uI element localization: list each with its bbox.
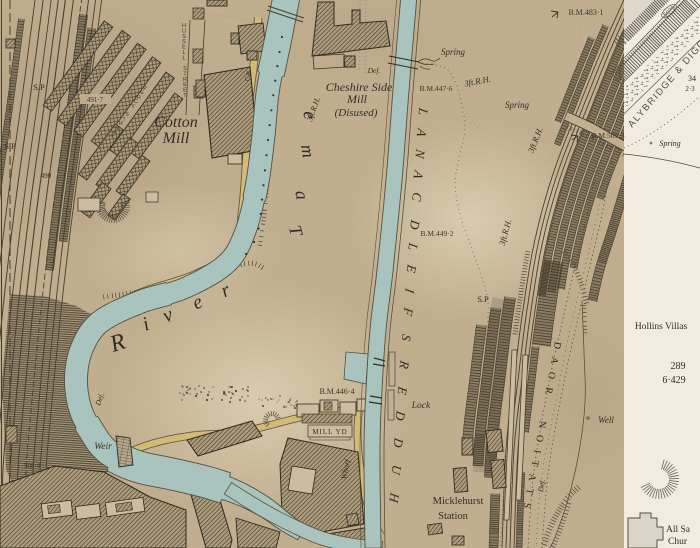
svg-text:Y: Y (131, 104, 135, 110)
svg-text:S.P: S.P (33, 82, 45, 92)
svg-text:S.P: S.P (4, 141, 16, 151)
svg-text:491·7: 491·7 (87, 96, 104, 104)
svg-text:(Disused): (Disused) (335, 107, 378, 119)
svg-text:MILL YD: MILL YD (312, 428, 347, 436)
svg-text:490: 490 (41, 172, 52, 180)
svg-text:B.M.509·3: B.M.509·3 (592, 131, 625, 140)
svg-text:Micklehurst: Micklehurst (433, 496, 484, 507)
svg-text:289: 289 (671, 361, 686, 372)
svg-text:Def.: Def. (367, 66, 381, 75)
svg-text:Cotton: Cotton (154, 114, 198, 131)
svg-text:L: L (182, 55, 185, 61)
svg-text:Lock: Lock (411, 401, 431, 411)
svg-text:Mill: Mill (346, 92, 368, 106)
svg-text:B.M.446·4: B.M.446·4 (319, 387, 354, 396)
svg-text:S: S (125, 112, 129, 118)
svg-text:6·429: 6·429 (662, 375, 685, 386)
svg-text:Weir: Weir (94, 442, 112, 452)
svg-text:Chur: Chur (668, 537, 688, 547)
svg-text:All Sa: All Sa (666, 525, 691, 535)
svg-text:E: E (113, 130, 117, 136)
svg-text:B.M.483·1: B.M.483·1 (568, 8, 603, 17)
svg-text:Spring: Spring (441, 47, 466, 57)
svg-text:Station: Station (438, 511, 469, 522)
svg-text:B.M.449·2: B.M.449·2 (421, 229, 454, 238)
svg-text:34: 34 (688, 74, 696, 83)
svg-text:Well: Well (598, 415, 614, 425)
svg-text:Spring: Spring (505, 100, 530, 110)
svg-text:Hollins Villas: Hollins Villas (635, 322, 688, 332)
svg-text:B.M.447·6: B.M.447·6 (420, 84, 453, 93)
svg-text:508·4: 508·4 (24, 462, 41, 470)
svg-text:2·3: 2·3 (685, 85, 695, 93)
svg-text:Spring: Spring (659, 139, 680, 148)
svg-text:T: T (183, 93, 187, 99)
svg-text:S.P: S.P (477, 294, 489, 304)
svg-text:Mill: Mill (162, 130, 190, 147)
